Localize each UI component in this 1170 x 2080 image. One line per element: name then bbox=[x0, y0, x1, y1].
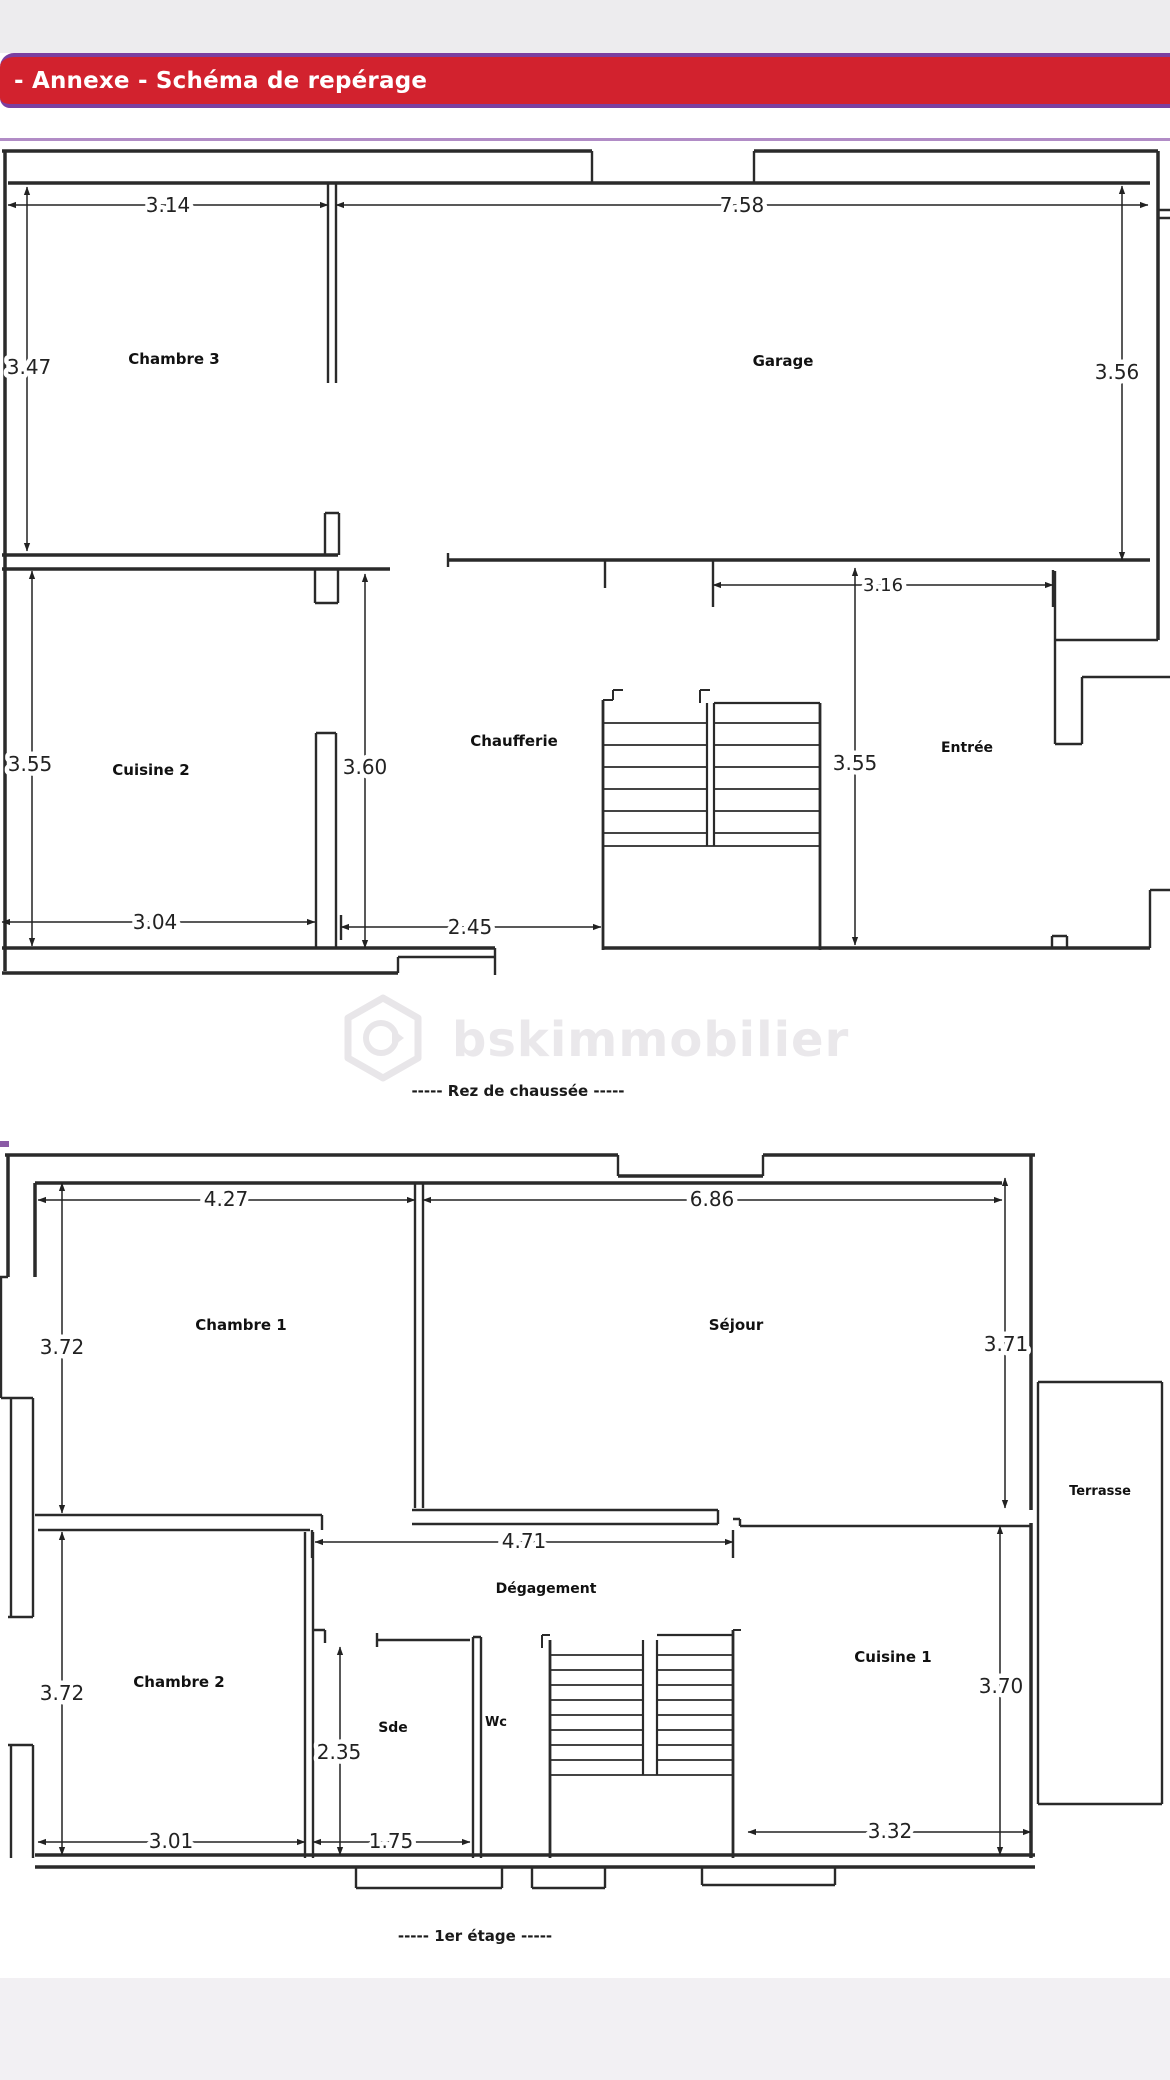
watermark-logo-hexagon bbox=[348, 998, 418, 1078]
floor-caption-rdc: ----- Rez de chaussée ----- bbox=[411, 1082, 624, 1100]
stair-center-divider bbox=[707, 703, 820, 846]
watermark-brand: bskimmobilier bbox=[452, 1012, 849, 1068]
etage1-dimension-lines bbox=[38, 1178, 1031, 1855]
room-label-garage: Garage bbox=[753, 352, 814, 370]
dim-chambre3-width: 3.14 bbox=[146, 193, 191, 217]
dim-chambre2-width: 3.01 bbox=[149, 1829, 194, 1853]
dim-cuisine2-width: 3.04 bbox=[133, 910, 178, 934]
watermark: bskimmobilier bbox=[348, 998, 849, 1078]
dim-chambre2-height: 3.72 bbox=[40, 1681, 85, 1705]
room-label-wc: Wc bbox=[485, 1715, 507, 1730]
dim-sejour-height: 3.71 bbox=[984, 1332, 1029, 1356]
dim-cuisine1-height: 3.70 bbox=[979, 1674, 1024, 1698]
stair-treads bbox=[550, 1655, 733, 1775]
dim-garage-height: 3.56 bbox=[1095, 360, 1140, 384]
rdc-outer-walls bbox=[2, 151, 1158, 973]
stair-treads bbox=[603, 723, 820, 846]
etage1-inner-walls bbox=[0, 1155, 1162, 1888]
watermark-logo-circle bbox=[366, 1023, 396, 1053]
dim-sde-width: 1.75 bbox=[369, 1829, 414, 1853]
dim-chaufferie-width: 2.45 bbox=[448, 915, 493, 939]
room-label-cuisine2: Cuisine 2 bbox=[112, 761, 189, 779]
floor-plan-rdc: 3.14 7.58 3.47 3.56 3.16 3.55 3.60 3.55 … bbox=[2, 151, 1170, 975]
room-label-degagement: Dégagement bbox=[496, 1581, 597, 1597]
watermark-logo-arrow-icon bbox=[392, 1029, 404, 1047]
room-label-chaufferie: Chaufferie bbox=[470, 732, 558, 750]
stair-jambs bbox=[603, 690, 710, 703]
dim-chambre1-width: 4.27 bbox=[204, 1187, 249, 1211]
stair-jambs bbox=[542, 1630, 741, 1648]
dim-cuisine1-width: 3.32 bbox=[868, 1819, 913, 1843]
rdc-dimension-lines bbox=[2, 186, 1148, 948]
dim-entree-width: 3.16 bbox=[863, 575, 903, 596]
rdc-inner-walls bbox=[315, 151, 1170, 975]
rdc-staircase bbox=[603, 690, 820, 950]
room-label-terrasse: Terrasse bbox=[1069, 1484, 1131, 1499]
room-label-chambre1: Chambre 1 bbox=[195, 1316, 286, 1334]
dim-sejour-width: 6.86 bbox=[690, 1187, 735, 1211]
room-label-cuisine1: Cuisine 1 bbox=[854, 1648, 931, 1666]
dim-middle-height: 3.60 bbox=[343, 755, 388, 779]
dim-degagement-width: 4.71 bbox=[502, 1529, 547, 1553]
room-label-entree: Entrée bbox=[941, 740, 993, 756]
floor-plan-etage1: 4.27 6.86 3.72 3.71 4.71 3.72 2.35 3.01 … bbox=[0, 1155, 1162, 1888]
stair-center-divider bbox=[643, 1635, 733, 1775]
dim-entree-height: 3.55 bbox=[833, 751, 878, 775]
floor-plans-canvas: 3.14 7.58 3.47 3.56 3.16 3.55 3.60 3.55 … bbox=[0, 0, 1170, 2080]
stair-side-walls bbox=[603, 700, 820, 950]
stair-side-walls bbox=[550, 1630, 733, 1858]
dim-garage-width: 7.58 bbox=[720, 193, 765, 217]
floor-caption-etage1: ----- 1er étage ----- bbox=[398, 1927, 552, 1945]
left-margin-artifact bbox=[0, 1141, 9, 1147]
etage1-staircase bbox=[542, 1630, 741, 1858]
dim-cuisine2-height: 3.55 bbox=[8, 752, 53, 776]
dim-sde-height: 2.35 bbox=[317, 1740, 362, 1764]
room-label-chambre3: Chambre 3 bbox=[128, 350, 219, 368]
dim-chambre3-height: 3.47 bbox=[7, 355, 52, 379]
dim-chambre1-height: 3.72 bbox=[40, 1335, 85, 1359]
room-label-chambre2: Chambre 2 bbox=[133, 1673, 224, 1691]
room-label-sejour: Séjour bbox=[709, 1316, 764, 1334]
room-label-sde: Sde bbox=[378, 1720, 408, 1736]
